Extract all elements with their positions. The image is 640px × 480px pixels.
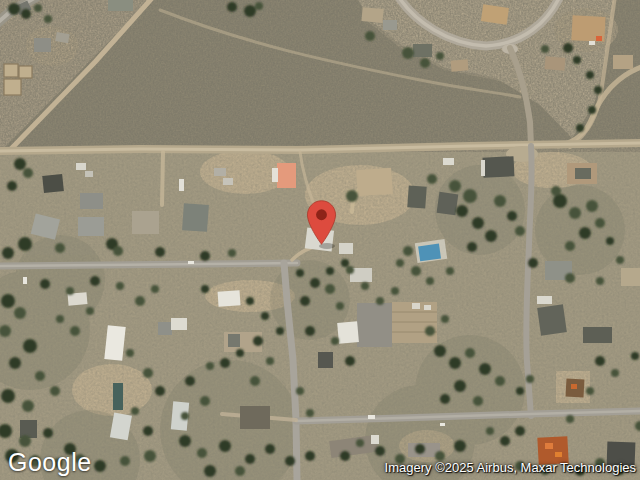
location-pin[interactable] — [306, 199, 337, 247]
pin-icon — [306, 199, 337, 247]
map-viewport[interactable]: Google Imagery ©2025 Airbus, Maxar Techn… — [0, 0, 640, 480]
imagery-attribution: Imagery ©2025 Airbus, Maxar Technologies — [385, 460, 636, 475]
google-logo: Google — [8, 448, 92, 477]
swimming-pool — [418, 244, 441, 262]
